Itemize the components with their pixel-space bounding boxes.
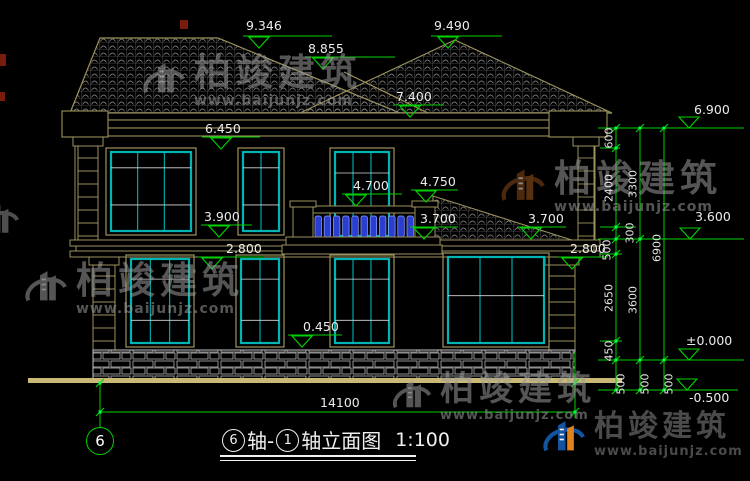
watermark: 柏竣建筑 www.baijunjz.com bbox=[20, 262, 244, 317]
watermark-url-text: www.baijunjz.com bbox=[194, 93, 362, 109]
elevation-label-balcony-floor: 3.700 bbox=[420, 213, 456, 226]
dim-label: 2400 bbox=[604, 174, 615, 202]
title-axis-end-circle: 1 bbox=[276, 429, 299, 452]
elevation-label-site: -0.500 bbox=[689, 392, 729, 405]
elevation-label-ridge-right: 9.490 bbox=[434, 20, 470, 33]
title-seg1: 轴- bbox=[247, 431, 274, 451]
eave-cornice bbox=[62, 111, 607, 137]
elevation-label-ground: ±0.000 bbox=[686, 335, 732, 348]
elevation-label-f2-floor-right: 3.600 bbox=[695, 211, 731, 224]
baluster bbox=[333, 216, 340, 237]
dim-label: 3600 bbox=[628, 286, 639, 314]
dim-label-total-width: 14100 bbox=[320, 397, 360, 410]
dim-label: 500 bbox=[616, 374, 627, 395]
baluster bbox=[361, 216, 368, 237]
brand-logo-icon bbox=[496, 160, 548, 216]
title-underline bbox=[220, 460, 416, 461]
elevation-label-balcony-rail: 4.700 bbox=[353, 180, 389, 193]
title-underline bbox=[220, 455, 416, 457]
baluster bbox=[324, 216, 331, 237]
elevation-label-f2-window-top: 6.450 bbox=[205, 123, 241, 136]
dim-label: 500 bbox=[640, 374, 651, 395]
elevation-label-eave-right: 6.900 bbox=[694, 104, 730, 117]
watermark-brand-text: 柏竣建筑 bbox=[440, 372, 596, 406]
elevation-label-f1-window-top: 2.800 bbox=[226, 243, 262, 256]
balcony-balusters bbox=[315, 216, 414, 237]
window bbox=[330, 255, 394, 347]
title-scale: 1:100 bbox=[395, 431, 450, 450]
elevation-label-porch-eave: 3.700 bbox=[528, 213, 564, 226]
brand-logo-icon bbox=[388, 372, 434, 422]
title-seg2: 轴立面图 bbox=[301, 431, 381, 451]
window bbox=[106, 148, 196, 235]
axis-bubble-number: 6 bbox=[95, 432, 105, 450]
cad-elevation-screenshot: 柏竣建筑 www.baijunjz.com 柏竣建筑 www.baijunjz.… bbox=[0, 0, 750, 481]
brand-logo-icon bbox=[538, 412, 588, 466]
dim-label: 3300 bbox=[628, 170, 639, 198]
brand-watermark-footer: 柏竣建筑 www.baijunjz.com bbox=[538, 412, 743, 466]
dim-label: 6900 bbox=[652, 234, 663, 262]
watermark-url-text: www.baijunjz.com bbox=[594, 444, 743, 459]
elevation-label-f1-sill: 0.450 bbox=[303, 321, 339, 334]
elevation-label-valley: 8.855 bbox=[308, 43, 344, 56]
drawing-title: 6轴-1轴立面图1:100 bbox=[220, 429, 450, 452]
brand-logo-icon bbox=[138, 54, 188, 108]
brand-logo-icon bbox=[20, 262, 70, 316]
brand-logo-icon bbox=[0, 196, 22, 248]
baluster bbox=[389, 216, 396, 237]
axis-bubble-6: 6 bbox=[86, 427, 114, 455]
dim-label: 500 bbox=[602, 240, 613, 261]
elevation-label-porch-top: 4.750 bbox=[420, 176, 456, 189]
dim-label: 600 bbox=[604, 128, 615, 149]
dim-label: 500 bbox=[664, 374, 675, 395]
watermark-brand-text: 柏竣建筑 bbox=[76, 262, 244, 299]
elevation-label-f2-band: 3.900 bbox=[204, 211, 240, 224]
baluster bbox=[370, 216, 377, 237]
baluster bbox=[352, 216, 359, 237]
elevation-label-ridge-left: 9.346 bbox=[246, 20, 282, 33]
watermark-url-text: www.baijunjz.com bbox=[76, 301, 244, 317]
window bbox=[443, 253, 549, 347]
baluster bbox=[315, 216, 322, 237]
dim-label: 2650 bbox=[604, 284, 615, 312]
watermark-brand-text: 柏竣建筑 bbox=[194, 54, 362, 91]
title-axis-start-circle: 6 bbox=[222, 429, 245, 452]
dim-label: 450 bbox=[604, 341, 615, 362]
watermark-partial bbox=[0, 196, 22, 248]
watermark: 柏竣建筑 www.baijunjz.com bbox=[138, 54, 362, 109]
baluster bbox=[379, 216, 386, 237]
dim-label: 300 bbox=[625, 223, 636, 244]
baluster bbox=[398, 216, 405, 237]
window bbox=[238, 148, 284, 235]
baluster bbox=[343, 216, 350, 237]
watermark-brand-text: 柏竣建筑 bbox=[594, 412, 743, 442]
elevation-label-roof-low: 7.400 bbox=[396, 91, 432, 104]
